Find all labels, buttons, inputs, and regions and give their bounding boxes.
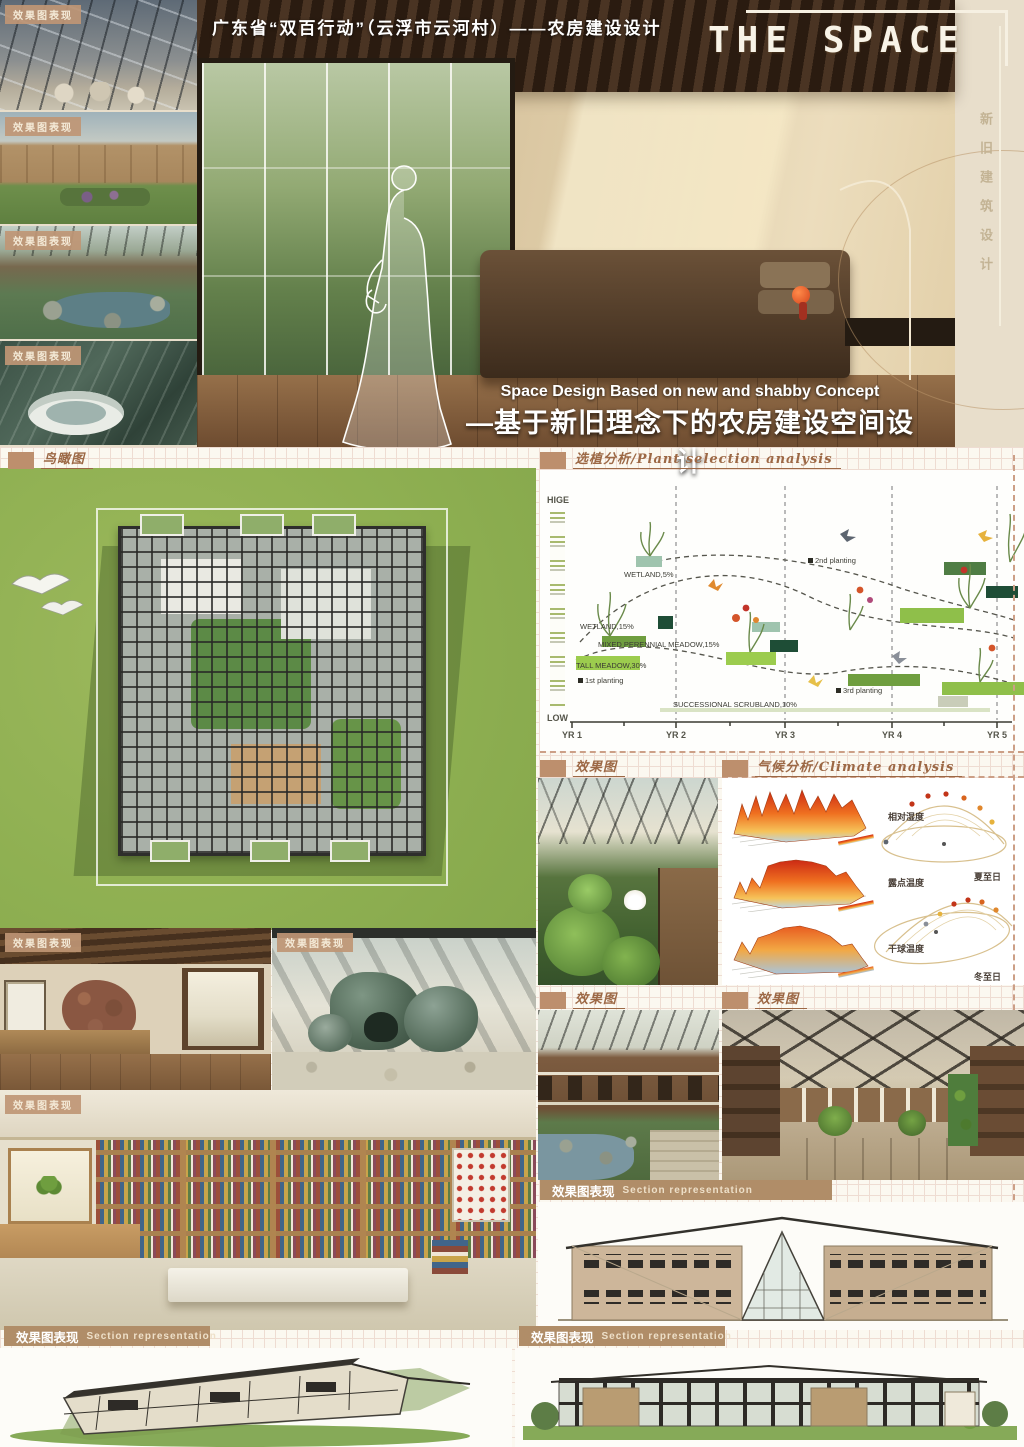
x-tick: YR 2 (666, 730, 686, 740)
green-wall (948, 1074, 978, 1146)
render-badge: 效果图表现 (5, 117, 81, 136)
section-bar: 效果图表现 Section representation (519, 1326, 725, 1346)
section-bar-en: Section representation (602, 1331, 732, 1342)
sun-diagram-label: 夏至日 (974, 870, 1001, 883)
roof-module (250, 840, 290, 862)
marker-dot (836, 688, 841, 693)
section-bullet (540, 760, 566, 777)
section-title: 选植分析/Plant selection analysis (573, 448, 841, 469)
rockery-render: 效果图表现 (272, 928, 536, 1090)
potted-plant (36, 1176, 62, 1198)
surface-plot-dewpoint (726, 848, 886, 912)
rock-cave (364, 1012, 398, 1042)
render-badge: 效果图表现 (5, 1095, 81, 1114)
y-axis-bottom-label: LOW (547, 713, 568, 723)
picture-window (182, 968, 264, 1050)
logo-text: THE SPACE (708, 20, 966, 61)
sunpath-summer-diagram (872, 782, 1022, 874)
tree (818, 1106, 852, 1136)
dot-artwork (452, 1148, 510, 1222)
planting-marker: 2nd planting (808, 556, 856, 565)
wood-floor (0, 1054, 271, 1090)
gull-bird-icon (40, 596, 86, 618)
far-building (780, 1088, 970, 1122)
roof-module (312, 514, 356, 536)
x-tick: YR 4 (882, 730, 902, 740)
marker-dot (808, 558, 813, 563)
section-bullet (722, 992, 748, 1009)
section-bullet (722, 760, 748, 777)
thumb-glasshouse-render: 效果图表现 (0, 0, 197, 112)
section-title: 气候分析/Climate analysis (755, 756, 962, 777)
y-axis-top-label: HIGE (547, 495, 569, 505)
render-badge: 效果图表现 (5, 346, 81, 365)
floor-lamp-icon (830, 150, 920, 380)
birdseye-view-render (0, 468, 536, 930)
gull-bird-icon (10, 568, 74, 598)
thumb-fence-courtyard-render: 效果图表现 (0, 112, 197, 226)
tree (898, 1110, 926, 1136)
lotus-leaf (602, 936, 660, 985)
poster-title: 广东省“双百行动”（云浮市云河村）——农房建设设计 (212, 14, 732, 39)
interior-room-render: 效果图表现 (0, 928, 271, 1090)
section-bar: 效果图表现 Section representation (540, 1180, 832, 1200)
section-bullet (8, 452, 34, 469)
rock (404, 986, 478, 1052)
balcony-rail (538, 1102, 719, 1105)
pool-water (46, 401, 106, 425)
planting-marker: 3rd planting (836, 686, 882, 695)
section-header-render1: 效果图 (540, 756, 625, 777)
zone-label: WETLAND,15% (580, 622, 634, 631)
wood-walkway (658, 868, 718, 985)
surface-plot-label: 干球温度 (888, 942, 924, 955)
surface-plot-drybulb (726, 914, 886, 978)
axon-building (0, 1348, 512, 1447)
section-bar: 效果图表现 Section representation (4, 1326, 210, 1346)
stone-path (650, 1130, 719, 1180)
vertical-tagline: 新旧建筑设计 (976, 112, 995, 286)
shoji-window (4, 980, 46, 1036)
x-tick: YR 1 (562, 730, 582, 740)
left-building (722, 1046, 780, 1156)
section-bar-zh: 效果图表现 (552, 1181, 615, 1200)
zone-label: SUCCESSIONAL SCRUBLAND,10% (673, 700, 797, 709)
gravel-base (272, 1052, 536, 1090)
climate-analysis-panel: 相对湿度 露点温度 干球温度 夏至日 (722, 778, 1024, 985)
roof-module (140, 514, 184, 536)
sunpath-winter-diagram (866, 882, 1024, 974)
paving (780, 1138, 970, 1180)
book-stack (432, 1240, 468, 1274)
lotus-flower (624, 890, 646, 910)
marker-dot (578, 678, 583, 683)
surface-plot-humidity (726, 782, 886, 846)
section-bullet (540, 452, 566, 469)
zone-label: MIXED PERENNIAL MEADOW,15% (598, 640, 719, 649)
canopy-courtyard-render (722, 1010, 1024, 1180)
white-bench (168, 1268, 408, 1302)
poster: 广东省“双百行动”（云浮市云河村）——农房建设设计 THE SPACE 新旧建筑… (0, 0, 1024, 1447)
section-title: 鸟瞰图 (41, 448, 93, 469)
vertical-rule (999, 26, 1001, 326)
dashed-divider (1013, 455, 1015, 1330)
section-header-birdseye: 鸟瞰图 (8, 448, 93, 469)
section-title: 效果图 (573, 988, 625, 1009)
wood-counter (0, 1030, 150, 1056)
right-building (970, 1046, 1024, 1156)
x-tick: YR 5 (987, 730, 1007, 740)
lamp-stand (799, 302, 807, 320)
stones (40, 82, 160, 104)
glass-grid-lines (121, 529, 423, 853)
render-badge: 效果图表现 (5, 231, 81, 250)
fence-planks (0, 145, 197, 183)
roof-module (330, 840, 370, 862)
section-header-render2: 效果图 (540, 988, 625, 1009)
dashed-divider (540, 751, 1024, 753)
lotus-leaf (568, 874, 612, 914)
section-bullet (540, 992, 566, 1009)
x-tick: YR 3 (775, 730, 795, 740)
glass-roof-truss (538, 778, 718, 844)
section-title: 效果图 (573, 756, 625, 777)
brick-building-section (538, 1202, 1024, 1330)
render-badge: 效果图表现 (5, 5, 81, 24)
section-header-plant: 选植分析/Plant selection analysis (540, 448, 841, 469)
render-badge: 效果图表现 (5, 933, 81, 952)
roof-module (240, 514, 284, 536)
pond-rocks (546, 1130, 646, 1170)
flower-bed (60, 188, 150, 206)
roof-module (150, 840, 190, 862)
building-elevation-render (515, 1348, 1024, 1447)
sketch-figure (328, 160, 478, 447)
render-badge: 效果图表现 (277, 933, 353, 952)
rocks (30, 284, 180, 328)
section-header-render3: 效果图 (722, 988, 807, 1009)
planting-marker: 1st planting (578, 676, 623, 685)
subtitle-english: Space Design Based on new and shabby Con… (460, 383, 920, 401)
building-roof-grid (118, 526, 426, 856)
section-perspective-render (538, 1202, 1024, 1330)
section-bar-en: Section representation (87, 1331, 217, 1342)
section-title: 效果图 (755, 988, 807, 1009)
building-axon-render (0, 1348, 512, 1447)
section-bar-zh: 效果图表现 (16, 1327, 79, 1346)
thumb-pond-courtyard-render: 效果图表现 (0, 226, 197, 341)
section-bar-en: Section representation (623, 1185, 753, 1196)
glass-roof-lines (538, 1010, 719, 1050)
balcony-rail (538, 1072, 719, 1075)
sun-diagram-label: 冬至日 (974, 970, 1001, 983)
section-header-climate: 气候分析/Climate analysis (722, 756, 962, 777)
courtyard-pond-render (538, 1010, 719, 1180)
surface-plot-label: 露点温度 (888, 876, 924, 889)
lotus-courtyard-render: 效果图表现 (538, 778, 718, 985)
bed-pillow (760, 262, 830, 288)
section-bar-zh: 效果图表现 (531, 1327, 594, 1346)
logo: THE SPACE (708, 6, 1008, 68)
door-openings (538, 1076, 719, 1100)
zone-label: TALL MEADOW,30% (576, 661, 646, 670)
plant-selection-chart: HIGE LOW (540, 470, 1024, 751)
zone-label: WETLAND,5% (624, 570, 674, 579)
library-render: 效果图表现 (0, 1090, 536, 1330)
elevation-building (515, 1348, 1024, 1447)
surface-plot-label: 相对湿度 (888, 810, 924, 823)
rock (308, 1014, 352, 1052)
thumb-rock-pool-render: 效果图表现 (0, 341, 197, 447)
